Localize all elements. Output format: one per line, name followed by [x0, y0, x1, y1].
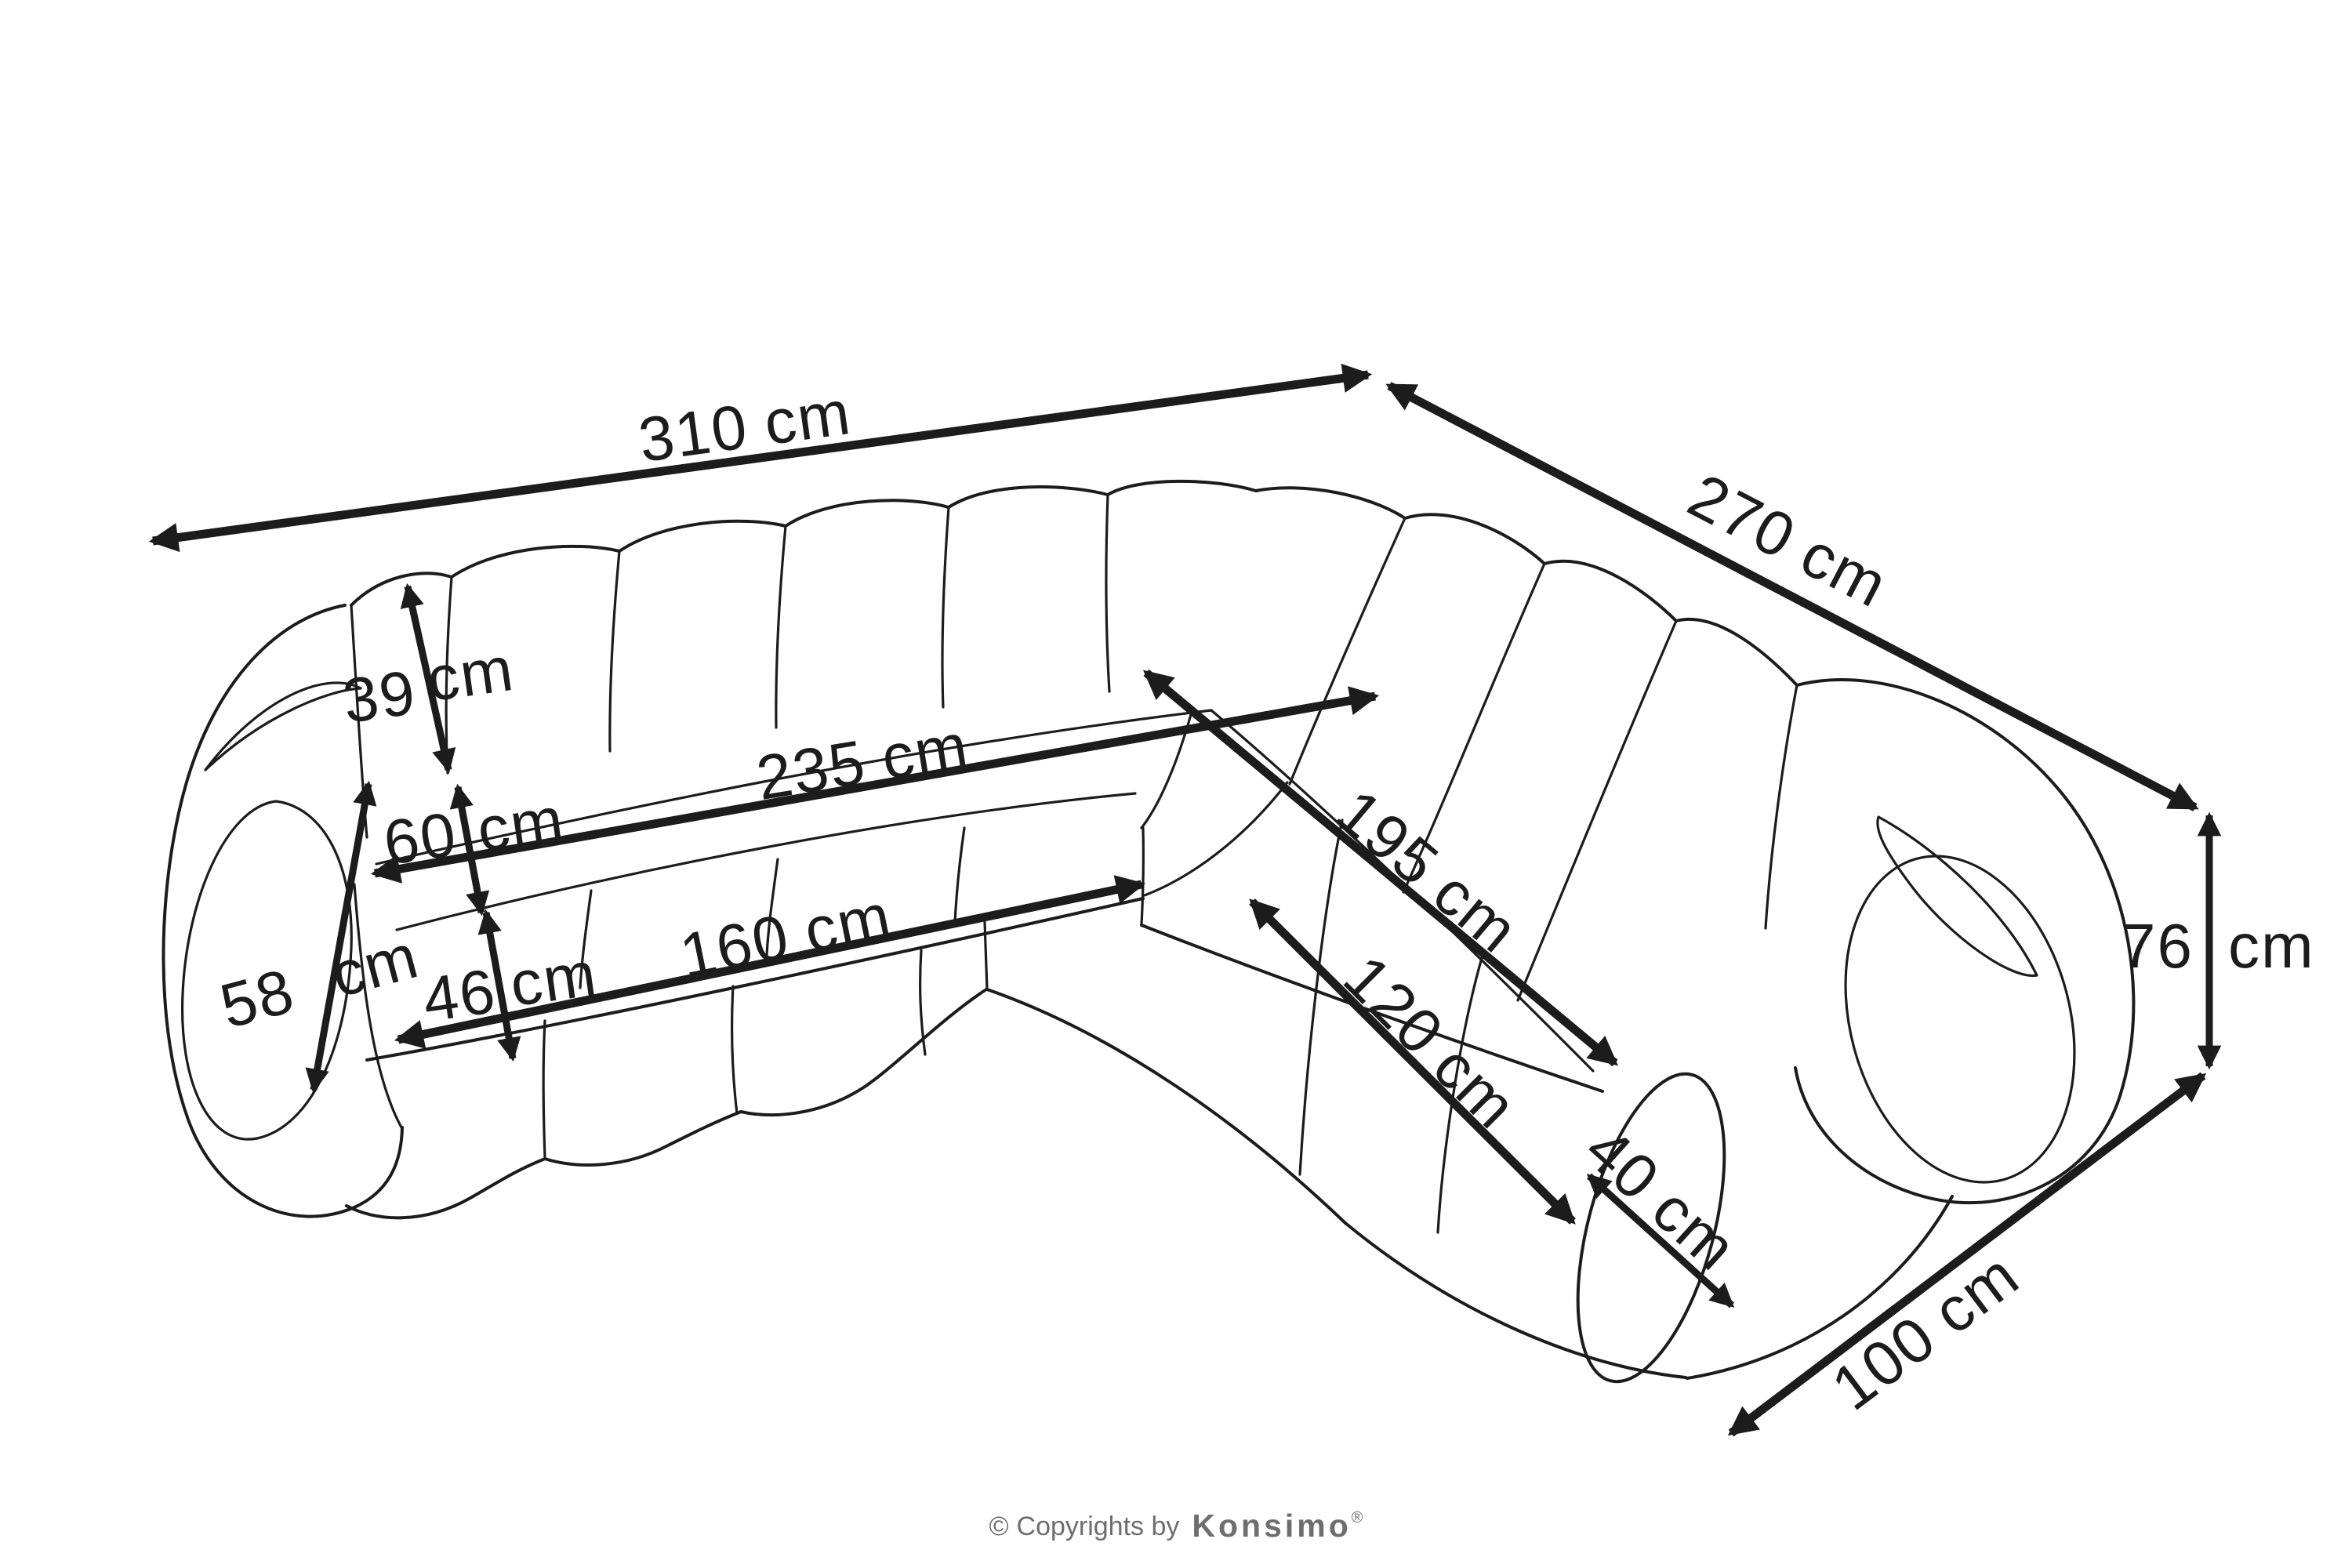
seat-front-seam-left-1: [543, 1021, 545, 1157]
corner-bottom-sweep: [987, 989, 1686, 1377]
label-overall-height-unit: cm: [2228, 911, 2315, 981]
brand-logo-text: Konsimo: [1192, 1508, 1351, 1544]
corner-fan-seam-2: [1145, 782, 1287, 895]
dimension-diagram-page: 310cm 270cm 76 cm 100cm 235cm 160cm 195c…: [0, 0, 2352, 1568]
label-overall-height-value: 76: [2121, 911, 2194, 981]
right-arm-front-panel: [1811, 830, 2109, 1208]
backrest-seam-left-5: [1106, 495, 1109, 691]
copyright-line: ©Copyrights byKonsimo®: [989, 1508, 1363, 1544]
corner-sofa-dimension-diagram: 310cm 270cm 76 cm 100cm 235cm 160cm 195c…: [0, 0, 2352, 1568]
left-arm-inner-seam: [354, 884, 401, 1127]
label-seat-depth-value: 60: [379, 799, 461, 878]
label-end-depth: 100cm: [1819, 1240, 2031, 1424]
label-back-length-right: 195cm: [1323, 776, 1532, 967]
label-seat-front-height-value: 46: [419, 956, 500, 1035]
backrest-seam-left-4: [942, 507, 949, 707]
seat-front-seam-left-2: [732, 986, 737, 1113]
corner-front-seam-2: [1142, 828, 1143, 925]
right-arm-top-roll-seam: [1878, 817, 2037, 975]
backrest-seam-left-2: [610, 551, 619, 751]
label-back-width-left: 235cm: [752, 710, 974, 813]
label-front-width-left: 160cm: [674, 880, 897, 991]
backrest-seam-right-1: [1290, 518, 1405, 784]
label-arm-face-height-value: 58: [213, 955, 302, 1041]
label-overall-width: 310cm: [634, 377, 855, 475]
right-arm-back-edge: [1766, 685, 1797, 928]
backrest-top-left: [351, 481, 1256, 605]
dimension-lines: [153, 375, 2209, 1433]
label-seat-depth-unit: cm: [473, 784, 568, 866]
seat-top-seam-left-3: [955, 828, 964, 922]
label-backrest-height-unit: cm: [423, 633, 518, 715]
dim-line-100: [1731, 1076, 2203, 1433]
dimension-labels: 310cm 270cm 76 cm 100cm 235cm 160cm 195c…: [213, 377, 2315, 1424]
dim-line-310: [153, 375, 1368, 541]
label-backrest-height-value: 39: [339, 657, 420, 736]
registered-mark: ®: [1352, 1509, 1363, 1526]
dim-line-270: [1389, 386, 2195, 808]
backrest-seam-left-3: [776, 526, 786, 728]
label-seat-front-height-unit: cm: [506, 938, 601, 1020]
left-arm-top-roll-seam: [205, 683, 361, 770]
backrest-seam-right-3: [1518, 621, 1676, 1000]
copyright-symbol: ©: [989, 1512, 1008, 1541]
